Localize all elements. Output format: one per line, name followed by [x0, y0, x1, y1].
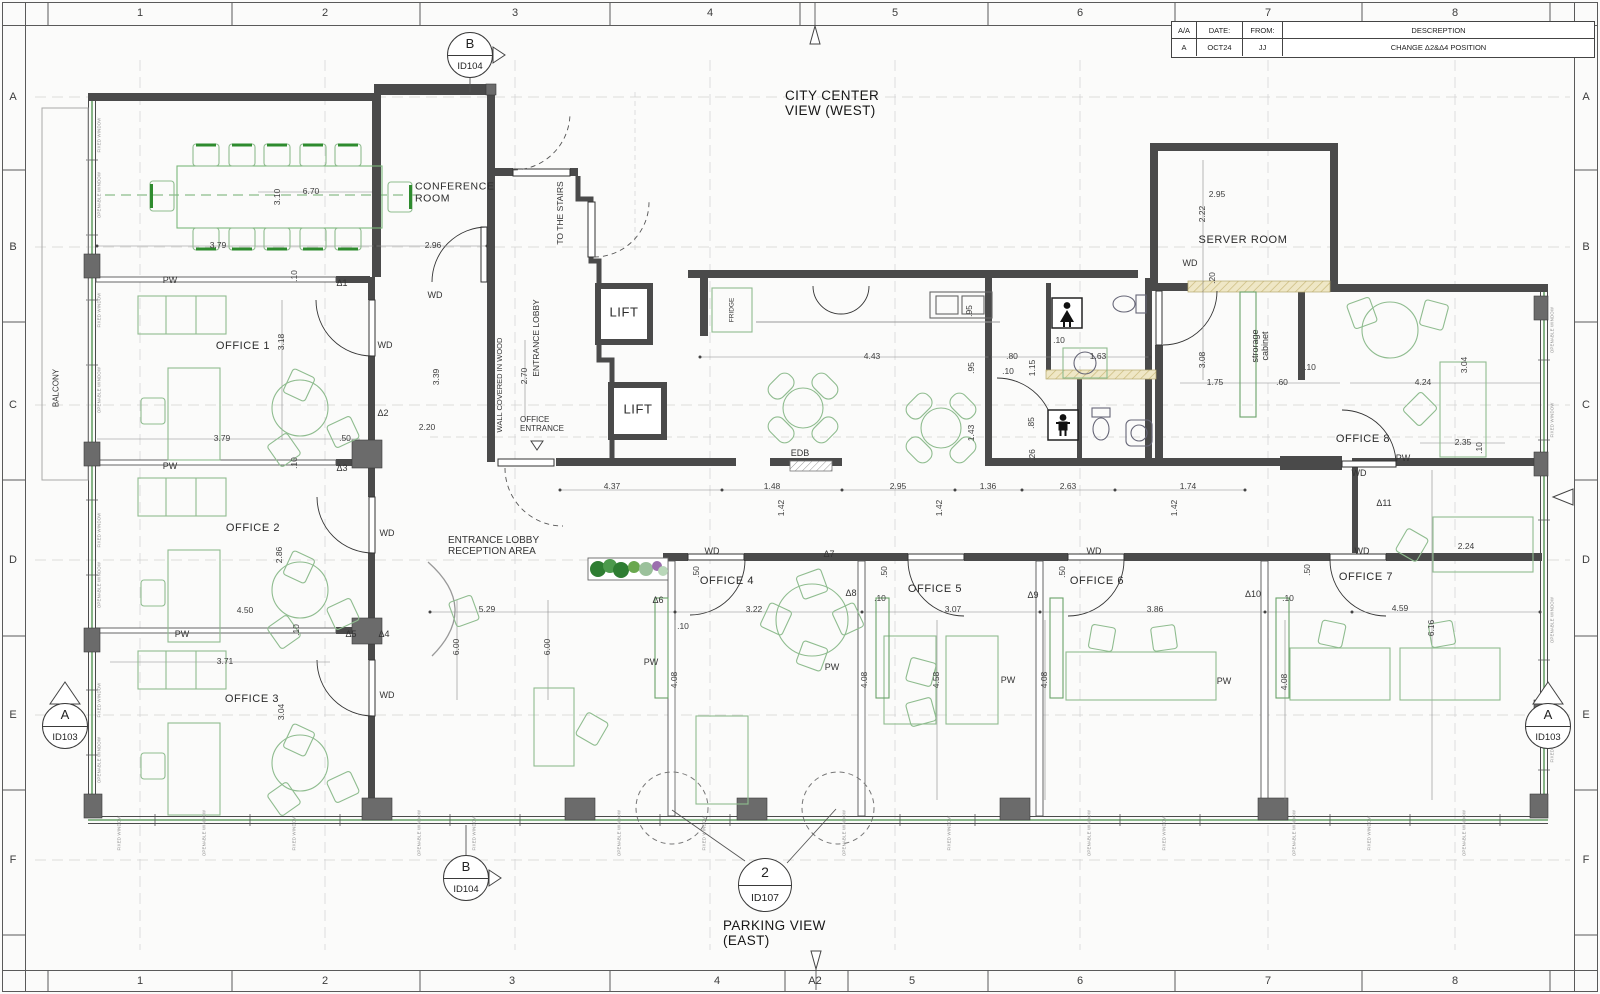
marker-id: ID107	[751, 892, 779, 904]
floor-plan-drawing	[0, 0, 1600, 994]
marker-id: ID104	[457, 61, 482, 72]
walls	[88, 84, 1548, 816]
marker-number: 2	[761, 864, 769, 880]
section-marker-b-bottom: B ID104	[443, 855, 489, 901]
office3-furniture	[138, 651, 360, 817]
male-icon	[1048, 410, 1078, 440]
female-icon	[1052, 298, 1082, 328]
revision-title-block: A/A DATE: FROM: DESCREPTION A OCT24 JJ C…	[1171, 21, 1595, 58]
titleblock-header-aa: A/A	[1172, 22, 1197, 39]
marker-letter: B	[466, 36, 475, 51]
marker-id: ID103	[52, 732, 77, 743]
reception-desk	[428, 562, 609, 766]
office1-furniture	[138, 296, 360, 468]
section-marker-a-left: A ID103	[42, 703, 88, 749]
detail-marker-2: 2 ID107	[738, 858, 792, 912]
floor-plan-sheet: CITY CENTER VIEW (WEST)PARKING VIEW (EAS…	[0, 0, 1600, 994]
columns	[84, 84, 1548, 820]
titleblock-rev-from: JJ	[1243, 39, 1283, 56]
balcony-outline	[42, 108, 88, 480]
titleblock-header-date: DATE:	[1197, 22, 1243, 39]
storage-cabinet	[1240, 292, 1256, 417]
office-entrance-pointer	[531, 441, 543, 450]
marker-letter: B	[462, 859, 471, 874]
door-arcs	[316, 227, 1396, 716]
titleblock-rev-letter: A	[1172, 39, 1197, 56]
office6-furniture	[1050, 598, 1216, 700]
titleblock-header-from: FROM:	[1243, 22, 1283, 39]
office2-furniture	[138, 478, 360, 650]
marker-letter: A	[61, 707, 70, 722]
kitchen-furniture	[712, 288, 1000, 485]
section-marker-b-top: B ID104	[447, 32, 493, 78]
furniture	[138, 144, 1533, 817]
marker-leader-lines	[466, 3, 836, 990]
planter-box	[588, 558, 668, 580]
sheet-frame	[2, 2, 1598, 992]
server-hatched-wall	[1188, 281, 1330, 292]
partition-walls	[96, 277, 1268, 816]
edb-box	[790, 461, 832, 471]
section-pointers	[50, 26, 1573, 969]
office4-furniture	[655, 568, 864, 804]
doors	[369, 169, 1396, 716]
section-marker-a-right: A ID103	[1525, 703, 1571, 749]
titleblock-rev-date: OCT24	[1197, 39, 1243, 56]
office8-furniture	[1346, 297, 1486, 457]
ruler-ticks	[2, 2, 1598, 992]
dimension-lines	[97, 160, 1540, 800]
marker-id: ID103	[1535, 732, 1560, 743]
titleblock-rev-description: CHANGE Δ2&Δ4 POSITION	[1283, 39, 1594, 56]
office7-furniture	[1276, 517, 1533, 700]
titleblock-header-description: DESCREPTION	[1283, 22, 1594, 39]
marker-letter: A	[1544, 707, 1553, 722]
marker-id: ID104	[453, 884, 478, 895]
